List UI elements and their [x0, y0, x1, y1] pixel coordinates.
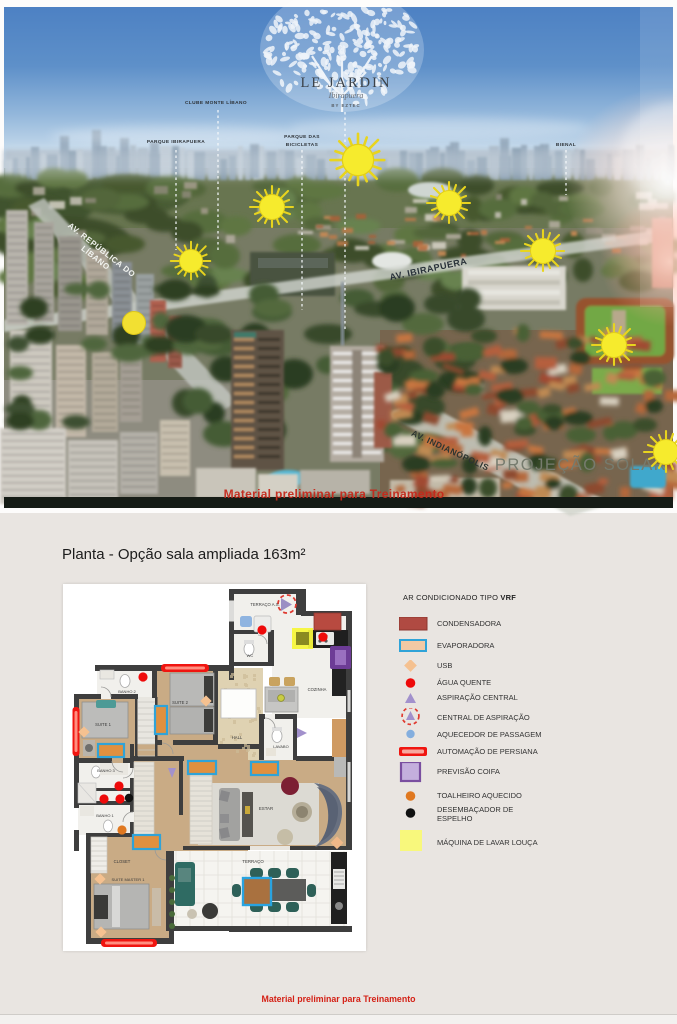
svg-text:SUITE 1: SUITE 1 [95, 722, 111, 727]
svg-text:TERRAÇO A.S.: TERRAÇO A.S. [250, 602, 279, 607]
svg-text:PARQUE DAS: PARQUE DAS [284, 134, 320, 140]
svg-text:BICICLETAS: BICICLETAS [286, 142, 319, 148]
svg-text:COZINHA: COZINHA [308, 687, 327, 692]
svg-text:PROJEÇÃO SOLAR: PROJEÇÃO SOLAR [495, 454, 667, 474]
svg-text:BY EZTEC: BY EZTEC [331, 103, 360, 108]
svg-text:LAVABO: LAVABO [273, 744, 288, 749]
svg-text:PARQUE IBIRAPUERA: PARQUE IBIRAPUERA [147, 139, 205, 145]
svg-text:ESTAR: ESTAR [259, 806, 273, 811]
svg-text:Material preliminar para Trein: Material preliminar para Treinamento [224, 487, 445, 501]
svg-text:LE JARDIN: LE JARDIN [301, 75, 392, 91]
svg-text:CLOSET: CLOSET [114, 859, 131, 864]
svg-text:BANHO 1: BANHO 1 [96, 813, 114, 818]
svg-text:WC: WC [247, 653, 254, 658]
svg-text:BIENAL: BIENAL [556, 142, 576, 148]
svg-text:BANHO 2: BANHO 2 [118, 689, 136, 694]
svg-text:Ibirapuera: Ibirapuera [328, 91, 364, 100]
svg-text:TERRAÇO: TERRAÇO [242, 859, 264, 864]
svg-text:SUITE 2: SUITE 2 [172, 700, 188, 705]
svg-text:BANHO 3: BANHO 3 [97, 768, 115, 773]
svg-text:HALL: HALL [232, 735, 243, 740]
svg-text:SUITE MASTER 1: SUITE MASTER 1 [112, 877, 146, 882]
